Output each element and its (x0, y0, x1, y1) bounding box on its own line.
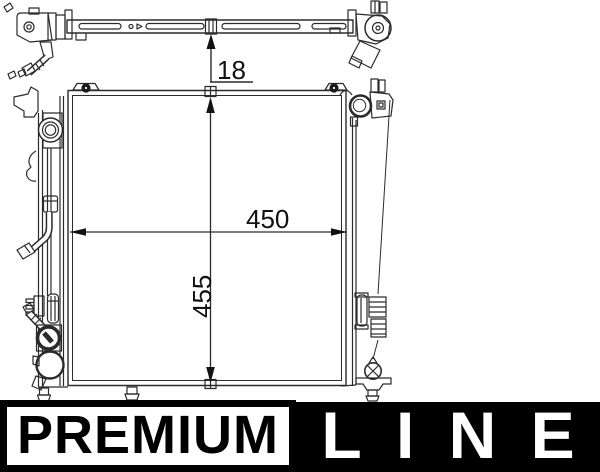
right-mounting-bracket (348, 1, 391, 68)
left-mounting-bracket (8, 8, 72, 79)
bottom-tick (8, 71, 16, 79)
outlet-stub (351, 41, 380, 68)
dimension-core-height: 455 (187, 97, 217, 383)
arrow-right-icon (331, 228, 347, 235)
dim-450-label: 450 (246, 204, 289, 234)
bolt-hole-icon (24, 22, 34, 32)
line-label: LINE (321, 402, 600, 468)
premium-badge: PREMIUM (0, 400, 296, 472)
line-badge: LINE (296, 402, 600, 472)
top-left-mount (73, 83, 99, 92)
premium-label: PREMIUM (17, 408, 279, 462)
radiator-core (68, 87, 346, 389)
upper-bracket (14, 87, 38, 117)
left-tick (4, 3, 13, 12)
side-clip (355, 293, 368, 329)
bracket-boss-icon (365, 15, 391, 41)
drain-plug-icon (37, 352, 64, 379)
left-tank (14, 87, 68, 401)
cylinder-fitting (48, 294, 59, 323)
center-bottom-pin (125, 387, 139, 400)
branding-banner: PREMIUM LINE (0, 400, 600, 472)
dimension-core-width: 450 (70, 204, 347, 236)
radiator-technical-drawing: 18 (0, 0, 600, 472)
arrow-up-icon (206, 97, 215, 113)
radiator-body (14, 79, 393, 401)
dim-18-label: 18 (217, 55, 246, 85)
bottom-pin (368, 390, 377, 396)
dim-455-label: 455 (187, 275, 217, 318)
connector-block-lower (371, 319, 386, 337)
side-clip (27, 151, 36, 181)
arrow-up-icon (207, 34, 216, 49)
top-crossmember (4, 1, 391, 79)
bottom-right-mount (356, 357, 391, 401)
connector-block-upper (369, 297, 386, 317)
right-tank (340, 79, 393, 401)
dimension-bar-height: 18 (207, 34, 254, 85)
crossmember-bar (67, 19, 353, 40)
side-bracket-rail (378, 100, 390, 294)
